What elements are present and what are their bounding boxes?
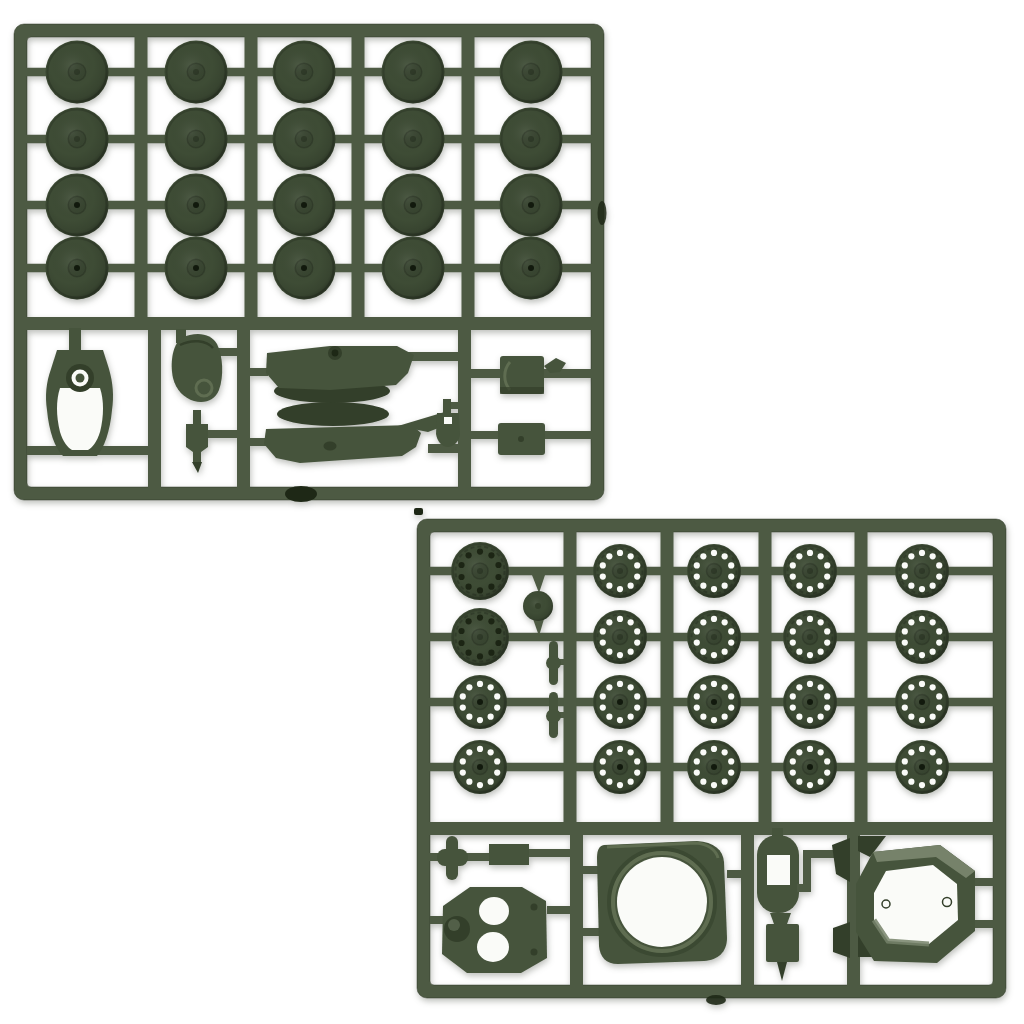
rod-bulge — [546, 656, 561, 670]
wheel-hole — [722, 749, 728, 755]
wheel-hole — [606, 583, 612, 589]
wheel-hole — [807, 550, 813, 556]
road-wheel — [273, 108, 336, 171]
wheel-hole — [494, 704, 500, 710]
wheel-center-dot — [301, 202, 307, 208]
wheel-center-dot — [807, 764, 813, 770]
wheel-center-dot — [528, 265, 534, 271]
wheel-hole — [807, 616, 813, 622]
wheel-hole — [466, 749, 472, 755]
wheel-hole — [936, 704, 942, 710]
road-wheel — [382, 237, 445, 300]
wheel-hole — [711, 746, 717, 752]
runner-stub — [583, 928, 600, 936]
hex-hole-1 — [882, 900, 890, 908]
wheel-hole — [824, 693, 830, 699]
wheel-hole — [919, 717, 925, 723]
perforated-wheel — [453, 740, 507, 794]
road-wheel — [500, 41, 563, 104]
funnel-block — [766, 924, 799, 962]
wheel-hole — [606, 749, 612, 755]
wheel-hole — [628, 714, 634, 720]
runner-stub — [430, 916, 444, 924]
wheel-hole — [728, 628, 734, 634]
mantlet-ring-pin — [76, 374, 85, 383]
wheel-hole — [628, 779, 634, 785]
wheel-hole — [930, 583, 936, 589]
turret-roof-part — [430, 887, 571, 973]
wheel-hole — [728, 639, 734, 645]
hull-hex-part — [856, 845, 994, 963]
wheel-hole — [617, 681, 623, 687]
wheel-hole — [700, 619, 706, 625]
wheel-hole — [700, 649, 706, 655]
wheel-hole — [600, 704, 606, 710]
wheel-hole — [796, 779, 802, 785]
stowage-box-top — [471, 356, 593, 394]
road-wheel — [46, 108, 109, 171]
wheel-hole — [495, 640, 501, 646]
wheel-hole — [494, 693, 500, 699]
fender-wedge — [833, 922, 850, 958]
bracket-part — [186, 410, 239, 473]
idler-disc-part — [523, 575, 553, 636]
wheel-hole — [919, 586, 925, 592]
perforated-wheel — [895, 675, 949, 729]
turret-lower-shell — [248, 402, 462, 463]
wheel-hole — [600, 573, 606, 579]
roof-dome-highlight — [448, 919, 460, 931]
turret-ring-part — [583, 841, 743, 964]
wheel-hole — [694, 639, 700, 645]
frame-divider — [352, 36, 365, 318]
sprue-a — [14, 24, 607, 502]
wheel-hole — [460, 769, 466, 775]
wheel-hole — [722, 583, 728, 589]
wheel-hole — [902, 769, 908, 775]
wheel-hole — [477, 548, 483, 554]
wheel-hole — [824, 628, 830, 634]
wheel-hole — [902, 639, 908, 645]
wheel-hole — [634, 639, 640, 645]
wheel-hole — [908, 619, 914, 625]
wheel-hole — [936, 769, 942, 775]
wheel-hole — [796, 749, 802, 755]
wheel-hole — [477, 587, 483, 593]
perforated-wheel — [783, 740, 837, 794]
wheel-hole — [458, 574, 464, 580]
wheel-center-dot — [919, 568, 925, 574]
wheel-hole — [790, 704, 796, 710]
frame-divider — [741, 834, 754, 986]
wheel-hole — [634, 562, 640, 568]
wheel-center-dot — [528, 69, 534, 75]
cross-fitting-part — [429, 836, 492, 880]
wheel-hole — [818, 649, 824, 655]
wheel-hole — [818, 619, 824, 625]
wheel-center-dot — [193, 265, 199, 271]
wheel-hole — [600, 769, 606, 775]
sprue-b — [414, 508, 1006, 1005]
perforated-wheel — [783, 544, 837, 598]
runner-stub — [529, 849, 571, 857]
wheel-hole — [728, 758, 734, 764]
wheel-hole — [466, 779, 472, 785]
wheel-hole — [488, 714, 494, 720]
frame-separator — [26, 317, 592, 330]
wheel-hole — [458, 562, 464, 568]
road-wheel — [382, 108, 445, 171]
wheel-center-dot — [617, 634, 623, 640]
wheel-hole — [930, 714, 936, 720]
wheel-hole — [634, 758, 640, 764]
wheel-hole — [722, 619, 728, 625]
perforated-wheel — [687, 610, 741, 664]
perforated-wheel — [687, 675, 741, 729]
wheel-hole — [818, 749, 824, 755]
wheel-hole — [936, 639, 942, 645]
wheel-hole — [807, 652, 813, 658]
wheel-hole — [694, 562, 700, 568]
wheel-center-dot — [193, 136, 199, 142]
wheel-hole — [824, 562, 830, 568]
wheel-hole — [694, 628, 700, 634]
runner-stub — [547, 906, 571, 914]
wheel-center-dot — [74, 69, 80, 75]
wheel-hole — [488, 749, 494, 755]
molding-gate-mark — [414, 508, 423, 515]
wheel-center-dot — [528, 136, 534, 142]
wheel-center-dot — [477, 764, 483, 770]
wheel-hole — [477, 614, 483, 620]
wheel-hole — [628, 553, 634, 559]
perforated-wheel — [451, 542, 509, 600]
model-kit-sprues-photo — [0, 0, 1024, 1024]
funnel-tip — [777, 962, 787, 981]
bracket-body — [186, 424, 208, 462]
wheel-hole — [600, 758, 606, 764]
wheel-hole — [936, 758, 942, 764]
runner-stub — [975, 878, 994, 886]
wheel-center-dot — [477, 634, 483, 640]
wheel-hole — [606, 714, 612, 720]
hex-hole-2 — [943, 898, 952, 907]
wheel-center-dot — [711, 568, 717, 574]
perforated-wheel — [783, 675, 837, 729]
wheel-hole — [807, 746, 813, 752]
runner-stub — [975, 920, 994, 928]
frame-divider — [564, 531, 577, 823]
wheel-hole — [495, 628, 501, 634]
wheel-hole — [694, 704, 700, 710]
hatch-opening-2 — [477, 932, 509, 962]
wheel-hole — [790, 693, 796, 699]
wheel-hole — [477, 746, 483, 752]
wheel-hole — [728, 573, 734, 579]
perforated-wheel — [451, 608, 509, 666]
mantlet-opening — [57, 388, 103, 450]
wheel-hole — [936, 693, 942, 699]
wheel-hole — [902, 562, 908, 568]
box-shade — [500, 387, 544, 394]
perforated-wheel — [593, 544, 647, 598]
runner-stub — [206, 430, 239, 438]
wheel-hole — [796, 553, 802, 559]
wheel-hole — [617, 586, 623, 592]
wheel-hole — [930, 553, 936, 559]
wheel-center-dot — [528, 202, 534, 208]
wheel-hole — [902, 704, 908, 710]
wheel-center-dot — [74, 202, 80, 208]
wheel-center-dot — [410, 69, 416, 75]
perforated-wheel — [687, 740, 741, 794]
road-wheel — [273, 237, 336, 300]
wheel-hole — [628, 749, 634, 755]
wheel-center-dot — [301, 265, 307, 271]
wheel-hole — [796, 583, 802, 589]
wheel-hole — [711, 550, 717, 556]
roof-dot — [531, 904, 538, 911]
cross-horizontal — [437, 849, 468, 866]
wheel-hole — [908, 749, 914, 755]
fuel-tank-part — [757, 828, 847, 913]
wheel-hole — [902, 693, 908, 699]
wheel-hole — [634, 693, 640, 699]
wheel-hole — [908, 553, 914, 559]
frame-divider — [462, 36, 475, 318]
molding-gate-mark — [706, 995, 726, 1005]
roof-dot — [531, 949, 538, 956]
wheel-hole — [728, 693, 734, 699]
wheel-hole — [930, 619, 936, 625]
wheel-center-dot — [711, 699, 717, 705]
wheel-hole — [477, 653, 483, 659]
wheel-hole — [818, 779, 824, 785]
perforated-wheel — [593, 740, 647, 794]
ring-opening — [617, 857, 707, 947]
road-wheel — [500, 174, 563, 237]
wheel-hole — [628, 619, 634, 625]
wheel-hole — [606, 779, 612, 785]
frame-divider — [661, 531, 674, 823]
wheel-hole — [711, 782, 717, 788]
shovel-part — [436, 399, 462, 447]
wheel-hole — [824, 639, 830, 645]
wheel-hole — [818, 583, 824, 589]
wheel-hole — [465, 552, 471, 558]
wheel-hole — [477, 681, 483, 687]
wheel-hole — [628, 684, 634, 690]
wheel-hole — [617, 616, 623, 622]
wheel-hole — [790, 562, 796, 568]
perforated-wheel — [593, 675, 647, 729]
wheel-hole — [465, 584, 471, 590]
axle-rod-1 — [546, 641, 566, 685]
wheel-hole — [790, 573, 796, 579]
wheel-hole — [634, 704, 640, 710]
wheel-hole — [606, 553, 612, 559]
wheel-hole — [728, 769, 734, 775]
road-wheel — [382, 41, 445, 104]
road-wheel — [165, 108, 228, 171]
wheel-center-dot — [74, 265, 80, 271]
wheel-hole — [477, 782, 483, 788]
wheel-hole — [477, 717, 483, 723]
wheel-hole — [700, 749, 706, 755]
gun-port-hole — [332, 350, 339, 357]
wheel-hole — [460, 704, 466, 710]
wheel-hole — [711, 616, 717, 622]
wheel-hole — [694, 758, 700, 764]
wheel-center-dot — [617, 764, 623, 770]
bracket-pin — [193, 410, 201, 424]
wheel-hole — [722, 684, 728, 690]
wheel-hole — [617, 746, 623, 752]
wheel-hole — [711, 652, 717, 658]
block-part — [489, 844, 571, 865]
wheel-hole — [722, 553, 728, 559]
wheel-hole — [919, 550, 925, 556]
wheel-hole — [824, 758, 830, 764]
wheel-hole — [790, 769, 796, 775]
shovel-slot — [444, 417, 452, 424]
wheel-hole — [700, 779, 706, 785]
wheel-hole — [722, 779, 728, 785]
road-wheel — [500, 108, 563, 171]
idler-hub — [535, 603, 541, 609]
wheel-hole — [694, 693, 700, 699]
bracket-tip — [192, 462, 202, 473]
wheel-center-dot — [301, 136, 307, 142]
hull-hatch-oval — [324, 442, 337, 451]
wheel-hole — [711, 681, 717, 687]
wheel-center-dot — [919, 634, 925, 640]
wheel-hole — [919, 652, 925, 658]
frame-divider — [135, 36, 148, 318]
wheel-hole — [908, 714, 914, 720]
wheel-hole — [824, 769, 830, 775]
wheel-hole — [465, 650, 471, 656]
wheel-center-dot — [919, 699, 925, 705]
perforated-wheel — [895, 610, 949, 664]
wheel-hole — [796, 684, 802, 690]
wheel-hole — [919, 746, 925, 752]
wheel-hole — [488, 684, 494, 690]
wheel-hole — [458, 628, 464, 634]
stowage-box-bottom — [471, 423, 593, 455]
runner-stub — [248, 368, 268, 376]
perforated-wheel — [453, 675, 507, 729]
wheel-hole — [628, 649, 634, 655]
wheel-hole — [606, 619, 612, 625]
wheel-hole — [466, 714, 472, 720]
wheel-hole — [617, 782, 623, 788]
frame-separator — [429, 822, 994, 835]
wheel-center-dot — [193, 69, 199, 75]
road-wheel — [382, 174, 445, 237]
funnel-block-part — [766, 913, 799, 981]
wheel-hole — [790, 758, 796, 764]
wheel-hole — [466, 684, 472, 690]
wheel-center-dot — [410, 136, 416, 142]
wheel-hole — [919, 616, 925, 622]
wheel-hole — [711, 717, 717, 723]
wheel-center-dot — [617, 568, 623, 574]
wheel-hole — [807, 681, 813, 687]
wheel-hole — [458, 640, 464, 646]
wheel-hole — [908, 583, 914, 589]
wheel-hole — [930, 649, 936, 655]
wheel-hole — [600, 639, 606, 645]
wheel-hole — [807, 717, 813, 723]
runner-stub — [727, 870, 743, 878]
wheel-hole — [790, 639, 796, 645]
wheel-hole — [694, 769, 700, 775]
tank-window — [767, 855, 790, 885]
wheel-hole — [700, 553, 706, 559]
wheel-hole — [936, 573, 942, 579]
wheel-hole — [936, 562, 942, 568]
molding-gate-mark — [598, 201, 607, 225]
turret-lower-hull — [264, 425, 421, 463]
road-wheel — [273, 174, 336, 237]
runner-stub — [532, 575, 545, 593]
wheel-hole — [902, 628, 908, 634]
road-wheel — [500, 237, 563, 300]
box-dot — [518, 436, 524, 442]
wheel-hole — [824, 704, 830, 710]
perforated-wheel — [895, 740, 949, 794]
funnel-neck — [770, 913, 791, 924]
perforated-wheel — [895, 544, 949, 598]
road-wheel — [46, 174, 109, 237]
wheel-hole — [722, 649, 728, 655]
fender-wedge — [832, 838, 850, 882]
wheel-hole — [460, 693, 466, 699]
wheel-hole — [488, 618, 494, 624]
road-wheel — [165, 41, 228, 104]
wheel-center-dot — [477, 568, 483, 574]
road-wheel — [165, 174, 228, 237]
runner-stub — [466, 853, 492, 861]
photo-stage — [0, 0, 1024, 1024]
wheel-hole — [617, 717, 623, 723]
wheel-hole — [902, 758, 908, 764]
gun-mantlet-part — [27, 328, 149, 456]
wheel-hole — [919, 681, 925, 687]
wheel-hole — [908, 779, 914, 785]
turret-lower-dome — [277, 402, 389, 426]
hatch-opening-1 — [479, 897, 509, 925]
frame-divider — [759, 531, 772, 823]
wheel-hole — [790, 628, 796, 634]
wheel-hole — [600, 693, 606, 699]
wheel-center-dot — [477, 699, 483, 705]
rod-bulge — [546, 709, 561, 723]
road-wheel — [46, 237, 109, 300]
runner-stub — [471, 431, 500, 439]
wheel-hole — [936, 628, 942, 634]
wheel-hole — [600, 562, 606, 568]
wheel-hole — [495, 562, 501, 568]
wheel-hole — [465, 618, 471, 624]
wheel-hole — [488, 650, 494, 656]
wheel-hole — [700, 583, 706, 589]
wheel-hole — [919, 782, 925, 788]
wheel-hole — [606, 649, 612, 655]
wheel-hole — [488, 779, 494, 785]
wheel-center-dot — [807, 634, 813, 640]
